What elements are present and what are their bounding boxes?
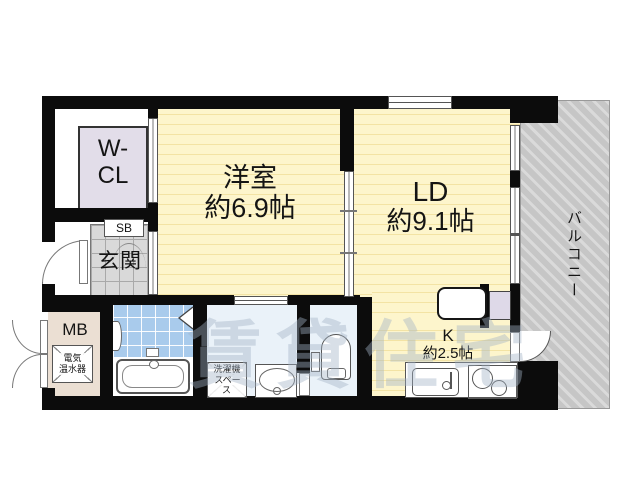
washbasin-counter (255, 364, 297, 398)
floorplan: バルコニー (0, 0, 640, 480)
pipe-shaft-box (489, 291, 511, 320)
meter-box-door-arc-top (12, 320, 42, 354)
water-heater-box: 電気温水器 (52, 345, 93, 383)
meter-box-door-arc-bottom (12, 354, 42, 388)
kitchen-faucet-stem (450, 372, 452, 389)
partition-sliding-door (344, 171, 354, 297)
wall (100, 305, 113, 398)
door-tick (340, 252, 357, 254)
wall (510, 170, 520, 187)
bath-step (146, 348, 159, 357)
window-top (388, 96, 452, 109)
door-tick (340, 210, 357, 212)
wall (42, 96, 55, 208)
wall (42, 396, 520, 410)
wall (510, 284, 520, 332)
bathtub-drain (149, 360, 159, 369)
meter-box-door-leaf (40, 320, 48, 354)
shoe-box-label: SB (116, 221, 132, 235)
toilet-door (299, 373, 310, 396)
closet-sliding-door (148, 118, 158, 203)
kitchen-balcony-door-leaf (510, 332, 520, 362)
wall (357, 297, 372, 398)
laundry-space-label: 洗濯機スペース (208, 364, 246, 396)
western-room-label: 洋室約6.9帖 (160, 163, 340, 223)
meter-box-door-leaf (40, 354, 48, 388)
balcony-label: バルコニー (563, 210, 584, 300)
wall (42, 222, 55, 242)
glass-door-divider (510, 233, 520, 236)
window-ld-upper (510, 125, 520, 171)
water-heater-label: 電気温水器 (57, 353, 88, 375)
wall (297, 305, 310, 373)
wall (42, 295, 104, 312)
kitchen-stove (468, 365, 517, 399)
laundry-space-box: 洗濯機スペース (207, 362, 247, 398)
bath-folding-door-icon (176, 306, 194, 330)
wall (207, 295, 234, 305)
wall (340, 105, 354, 171)
bath-counter (113, 321, 122, 351)
walk-in-closet-label: W-CL (78, 136, 148, 190)
toilet-seat (327, 368, 346, 379)
wall (518, 382, 558, 410)
shoe-box: SB (104, 219, 144, 237)
stove-burner-large (472, 368, 493, 389)
stove-burner-small (491, 380, 507, 396)
wall (148, 96, 158, 118)
wall (510, 96, 558, 123)
toilet (321, 334, 351, 380)
hall-room-door (148, 231, 158, 295)
refrigerator-space (437, 287, 487, 320)
washroom-sliding-door (234, 296, 288, 305)
kitchen-counter (405, 362, 518, 398)
wall (42, 388, 55, 410)
living-dining-label: LD約9.1帖 (358, 176, 503, 236)
washbasin-faucet (273, 387, 281, 395)
kitchen-label: K約2.5帖 (388, 326, 508, 363)
bathtub (116, 359, 190, 394)
entrance-label: 玄関 (92, 250, 148, 274)
wall (148, 203, 158, 231)
entrance-door-leaf (79, 240, 88, 284)
meter-box-label: MB (48, 320, 102, 339)
wall (193, 297, 207, 398)
toilet-side-unit (311, 352, 320, 372)
